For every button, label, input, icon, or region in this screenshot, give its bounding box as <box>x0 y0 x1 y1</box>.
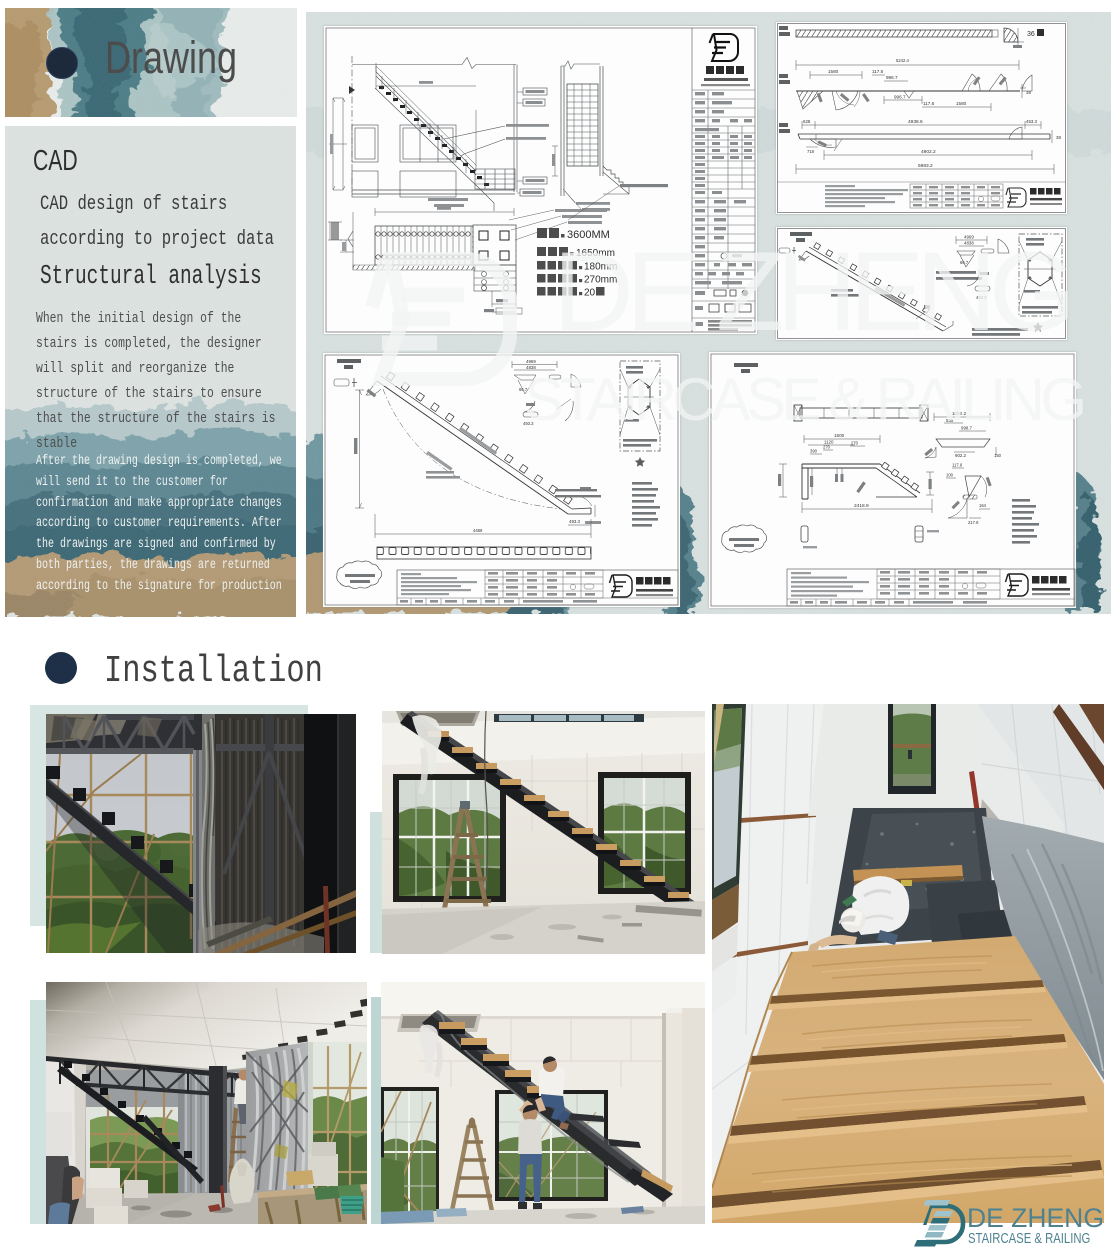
svg-text:100: 100 <box>946 473 954 478</box>
svg-text:1052.2: 1052.2 <box>952 411 966 416</box>
svg-text:117.6: 117.6 <box>923 101 935 106</box>
svg-text:36: 36 <box>1027 31 1035 38</box>
svg-text:117.6: 117.6 <box>872 69 884 74</box>
svg-text:998.7: 998.7 <box>886 75 898 80</box>
svg-text:5242.4: 5242.4 <box>896 58 909 63</box>
svg-text:2418.9: 2418.9 <box>854 503 869 509</box>
svg-text:4902.2: 4902.2 <box>921 149 936 155</box>
svg-text:217.6: 217.6 <box>968 520 979 525</box>
svg-text:164: 164 <box>979 503 987 508</box>
svg-text:4838: 4838 <box>964 241 974 246</box>
svg-text:4489: 4489 <box>473 528 483 533</box>
svg-text:493.3: 493.3 <box>569 519 581 524</box>
svg-text:902.2: 902.2 <box>955 453 967 458</box>
svg-text:117.6: 117.6 <box>952 463 963 468</box>
svg-text:180mm: 180mm <box>584 262 617 273</box>
svg-text:38: 38 <box>1056 135 1061 140</box>
svg-text:270: 270 <box>823 445 831 450</box>
svg-text:5983.2: 5983.2 <box>918 163 933 169</box>
svg-text:4938.6: 4938.6 <box>908 119 923 125</box>
svg-text:390: 390 <box>810 449 818 454</box>
svg-text:628: 628 <box>803 119 811 124</box>
svg-text:1580: 1580 <box>956 101 967 106</box>
svg-text:453.3: 453.3 <box>1026 119 1038 124</box>
svg-text:270: 270 <box>851 441 859 446</box>
svg-text:996.7: 996.7 <box>894 95 906 100</box>
svg-text:STAIRCASE & RAILING: STAIRCASE & RAILING <box>968 1230 1090 1247</box>
svg-text:718: 718 <box>807 149 815 154</box>
svg-text:998.7: 998.7 <box>961 426 973 431</box>
svg-text:4969: 4969 <box>964 235 974 240</box>
svg-text:3600MM: 3600MM <box>567 229 610 241</box>
svg-text:1580: 1580 <box>828 69 839 74</box>
svg-text:493.3: 493.3 <box>523 421 534 426</box>
svg-text:493.3: 493.3 <box>976 295 987 300</box>
svg-text:150: 150 <box>994 453 1002 458</box>
svg-text:66.7: 66.7 <box>960 260 969 265</box>
svg-text:270mm: 270mm <box>584 275 617 286</box>
svg-text:DE ZHENG: DE ZHENG <box>967 1203 1104 1233</box>
svg-text:1650mm: 1650mm <box>576 248 615 259</box>
svg-text:535: 535 <box>946 418 954 423</box>
svg-text:4838: 4838 <box>526 365 536 370</box>
svg-text:20: 20 <box>584 288 596 299</box>
svg-text:1500: 1500 <box>834 433 845 438</box>
svg-text:66.7: 66.7 <box>519 387 528 392</box>
svg-text:4969: 4969 <box>526 359 536 364</box>
